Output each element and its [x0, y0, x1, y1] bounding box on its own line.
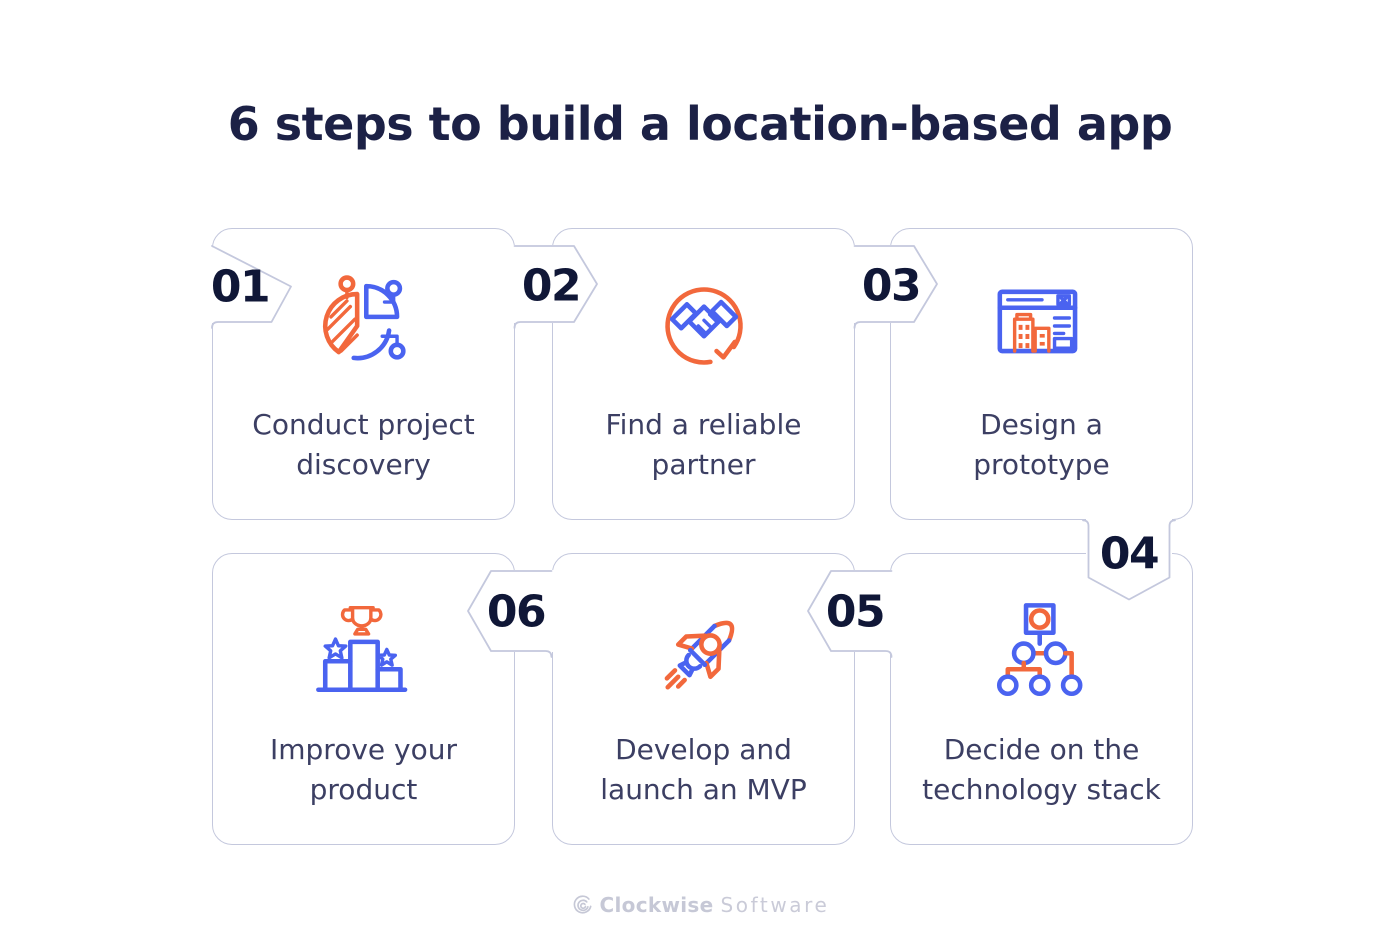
pie-chart-icon [307, 269, 421, 383]
browser-prototype-icon [985, 269, 1099, 383]
page-title: 6 steps to build a location-based app [0, 97, 1400, 151]
rocket-icon [647, 594, 761, 708]
step-6-icon-wrap [213, 594, 514, 708]
brand-name-light: Software [720, 893, 829, 917]
step-card-4: Decide on the technology stack [890, 553, 1193, 845]
clockwise-swirl-icon [571, 894, 593, 916]
infographic-canvas: 6 steps to build a location-based app Co… [0, 0, 1400, 950]
footer-brand: Clockwise Software [0, 893, 1400, 917]
step-4-icon-wrap [891, 594, 1192, 708]
step-number-badge: 06 [487, 587, 545, 638]
step-card-2: Find a reliable partner [552, 228, 855, 520]
step-card-3: Design a prototype [890, 228, 1193, 520]
step-label: Conduct project discovery [221, 405, 506, 501]
step-2-icon-wrap [553, 269, 854, 383]
step-number-badge: 02 [522, 261, 580, 312]
brand-name-bold: Clockwise [600, 893, 714, 917]
step-card-5: Develop and launch an MVP [552, 553, 855, 845]
step-label: Design a prototype [899, 405, 1184, 501]
step-5-icon-wrap [553, 594, 854, 708]
step-label: Decide on the technology stack [899, 730, 1184, 826]
hierarchy-icon [985, 594, 1099, 708]
step-number-badge: 04 [1100, 529, 1158, 580]
step-label: Develop and launch an MVP [561, 730, 846, 826]
step-number-badge: 01 [211, 262, 269, 313]
step-number-badge: 03 [862, 261, 920, 312]
step-number-badge: 05 [826, 587, 884, 638]
handshake-icon [647, 269, 761, 383]
podium-trophy-icon [307, 594, 421, 708]
step-3-icon-wrap [891, 269, 1192, 383]
step-label: Improve your product [221, 730, 506, 826]
step-label: Find a reliable partner [561, 405, 846, 501]
step-card-6: Improve your product [212, 553, 515, 845]
